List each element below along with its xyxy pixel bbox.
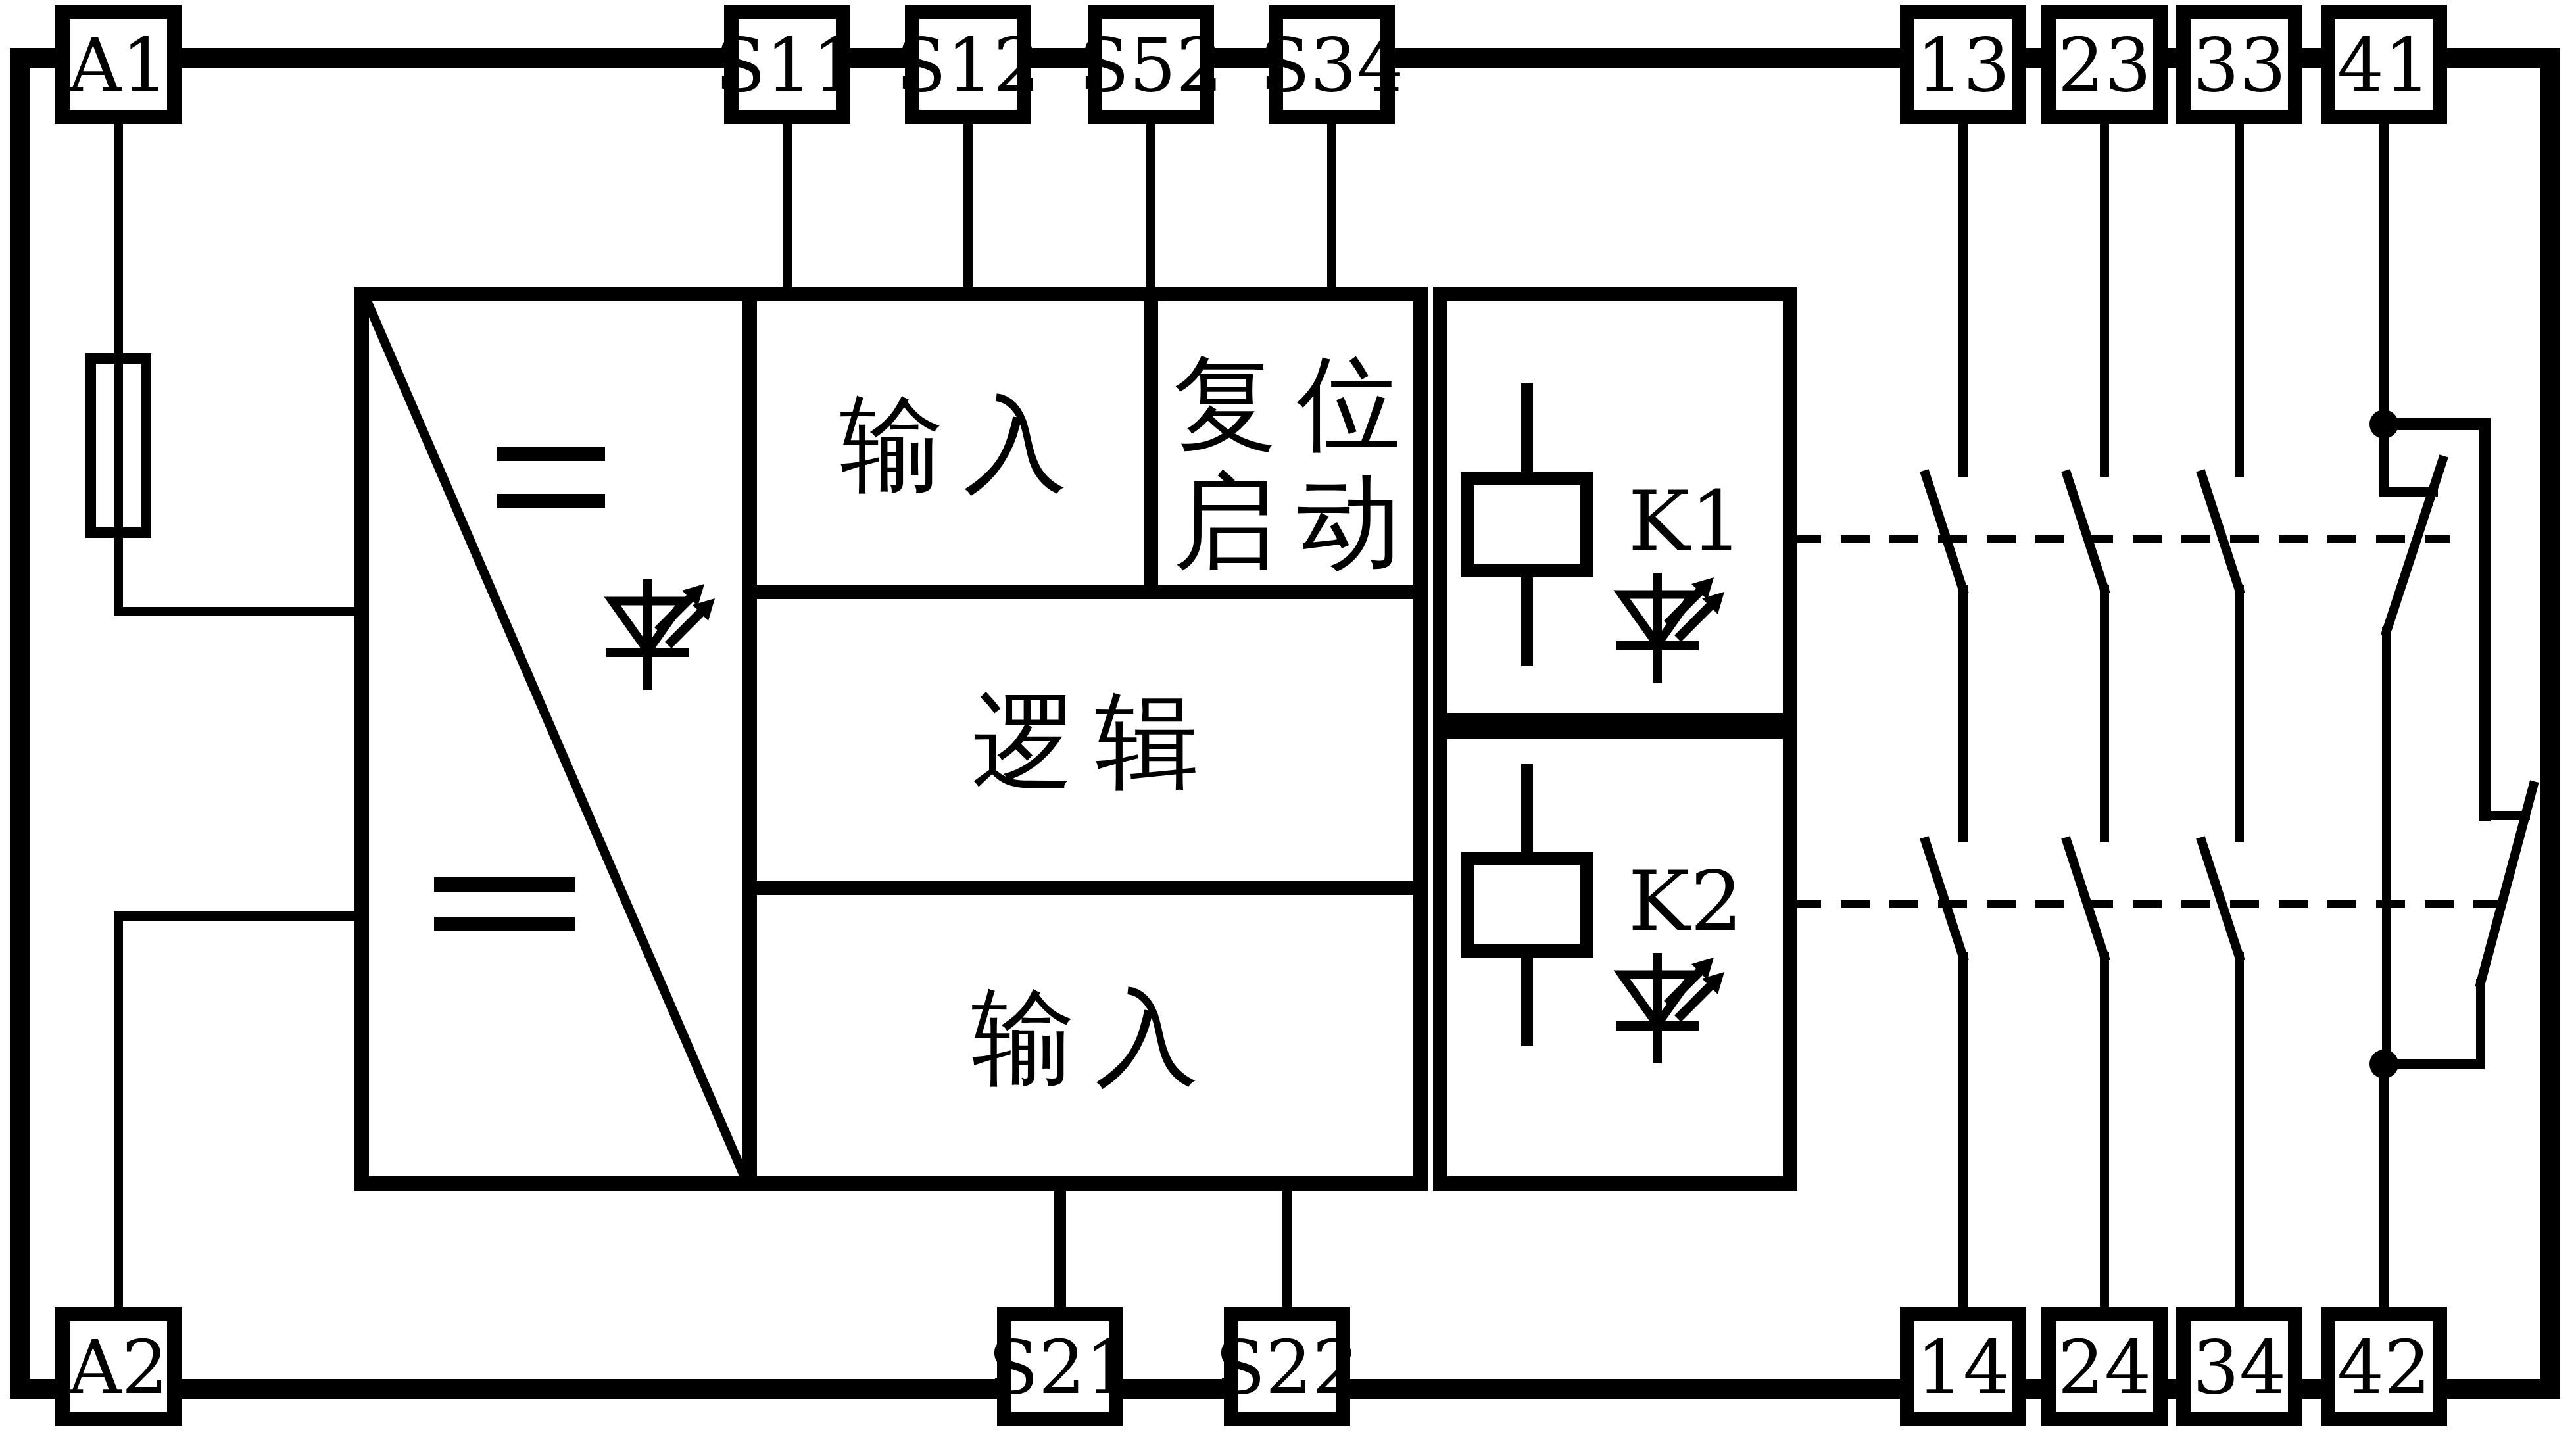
relay-coil-icon bbox=[1467, 389, 1587, 660]
terminal-label: 13 bbox=[1916, 22, 2010, 108]
terminal-23: 23 bbox=[2049, 12, 2160, 117]
terminal-label: 24 bbox=[2058, 1324, 2152, 1410]
relay-k1-block: K1 bbox=[1440, 294, 1790, 720]
reset-label: 复位 bbox=[1173, 343, 1421, 464]
terminal-s52: S52 bbox=[1079, 12, 1223, 117]
terminal-s21: S21 bbox=[988, 1314, 1132, 1419]
terminal-label: 41 bbox=[2337, 22, 2431, 108]
safety-relay-diagram: 输入 复位 启动 逻辑 输入 K1 K2 bbox=[0, 0, 2576, 1431]
terminal-s11: S11 bbox=[715, 12, 859, 117]
no-contact-column-33-34 bbox=[2202, 117, 2239, 1314]
terminal-s22: S22 bbox=[1215, 1314, 1359, 1419]
start-label: 启动 bbox=[1173, 461, 1421, 582]
terminal-41: 41 bbox=[2328, 12, 2440, 117]
a2-supply-wire bbox=[118, 916, 362, 1314]
normally-closed-contact-k2 bbox=[2384, 786, 2533, 1064]
logic-label: 逻辑 bbox=[971, 681, 1219, 802]
terminal-34: 34 bbox=[2183, 1314, 2295, 1419]
power-supply-block bbox=[362, 294, 750, 1184]
terminal-s12: S12 bbox=[896, 12, 1040, 117]
normally-closed-contact-k1 bbox=[2384, 424, 2442, 1064]
power-supply-diagonal bbox=[366, 298, 746, 1180]
dc-equals-icon bbox=[434, 885, 575, 924]
terminal-a1: A1 bbox=[62, 12, 174, 117]
a1-supply-wire bbox=[118, 117, 362, 612]
k2-label: K2 bbox=[1628, 853, 1743, 950]
led-indicator-icon bbox=[611, 584, 715, 685]
terminal-13: 13 bbox=[1907, 12, 2019, 117]
terminal-label: S22 bbox=[1215, 1324, 1359, 1410]
terminal-label: A2 bbox=[68, 1324, 168, 1410]
terminal-label: S34 bbox=[1259, 22, 1403, 108]
dc-equals-icon bbox=[497, 454, 605, 501]
relay-coil-icon bbox=[1467, 769, 1587, 1040]
terminals-bottom: A2 S21 S22 14 24 34 42 bbox=[62, 1314, 2440, 1419]
terminal-label: 34 bbox=[2193, 1324, 2287, 1410]
terminal-label: 23 bbox=[2058, 22, 2152, 108]
terminal-label: 33 bbox=[2193, 22, 2287, 108]
led-indicator-icon bbox=[1620, 958, 1724, 1059]
k2-box bbox=[1440, 732, 1790, 1184]
input-top-label: 输入 bbox=[840, 383, 1087, 504]
terminal-label: S12 bbox=[896, 22, 1040, 108]
terminal-label: S52 bbox=[1079, 22, 1223, 108]
terminal-s34: S34 bbox=[1259, 12, 1403, 117]
terminal-24: 24 bbox=[2049, 1314, 2160, 1419]
terminal-14: 14 bbox=[1907, 1314, 2019, 1419]
no-contact-column-23-24 bbox=[2067, 117, 2104, 1314]
terminal-label: S11 bbox=[715, 22, 859, 108]
terminal-label: A1 bbox=[68, 22, 168, 108]
terminal-33: 33 bbox=[2183, 12, 2295, 117]
diagram-canvas: 输入 复位 启动 逻辑 输入 K1 K2 bbox=[0, 0, 2576, 1431]
terminal-label: 42 bbox=[2337, 1324, 2431, 1410]
no-contact-column-13-14 bbox=[1926, 117, 1963, 1314]
nc-contact-chain-41-42 bbox=[2369, 117, 2533, 1314]
input-bottom-label: 输入 bbox=[971, 977, 1219, 1098]
terminal-label: S21 bbox=[988, 1324, 1132, 1410]
terminal-42: 42 bbox=[2328, 1314, 2440, 1419]
led-indicator-icon bbox=[1620, 577, 1724, 679]
relay-k2-block: K2 bbox=[1440, 732, 1790, 1184]
k1-label: K1 bbox=[1628, 473, 1743, 570]
terminal-label: 14 bbox=[1916, 1324, 2010, 1410]
terminal-a2: A2 bbox=[62, 1314, 174, 1419]
supply-circuit bbox=[91, 117, 362, 1314]
function-blocks: 输入 复位 启动 逻辑 输入 bbox=[750, 294, 1421, 1184]
